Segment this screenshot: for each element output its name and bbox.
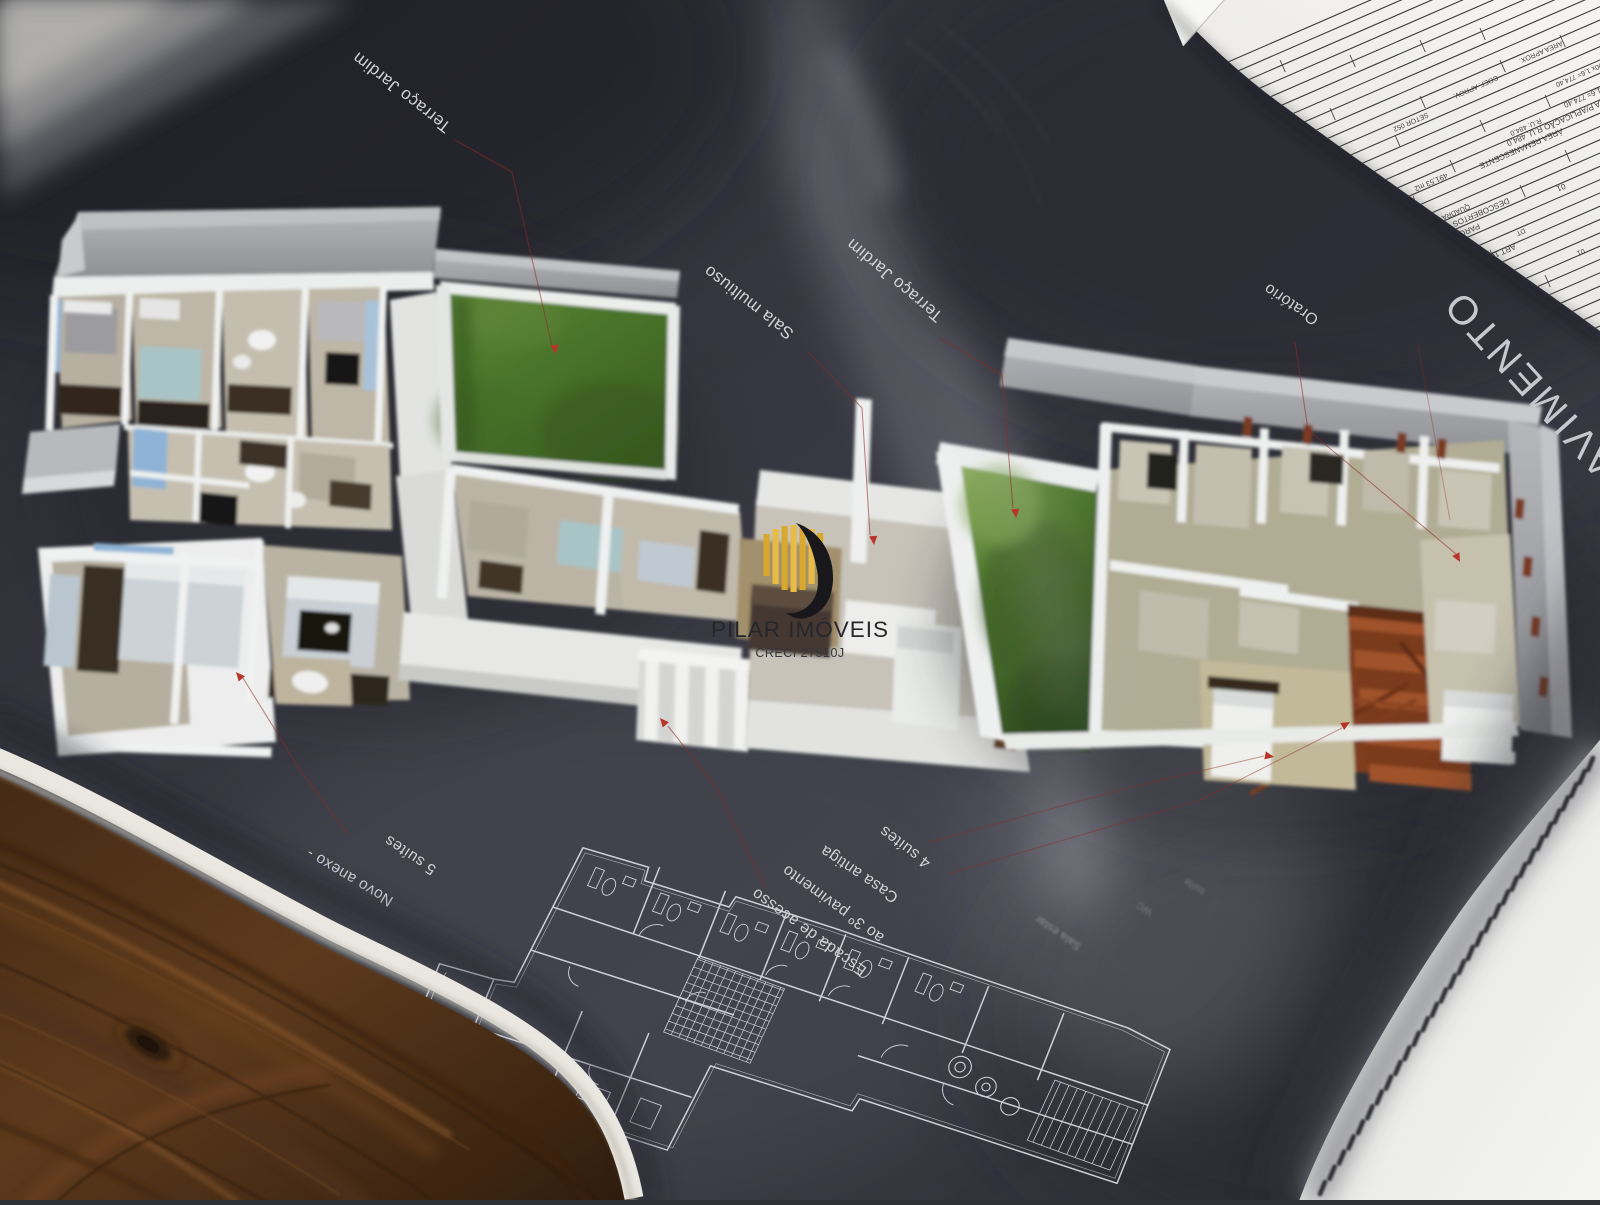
svg-text:CRECI 27510J: CRECI 27510J — [755, 646, 844, 660]
svg-text:PILAR IMÓVEIS: PILAR IMÓVEIS — [711, 617, 889, 642]
